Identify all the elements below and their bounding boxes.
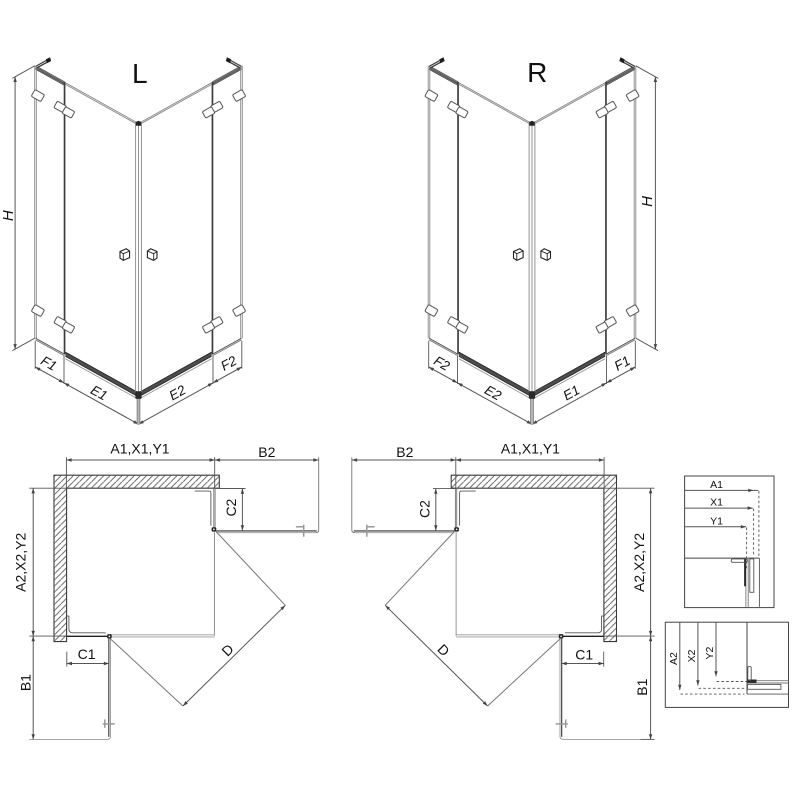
- svg-text:H: H: [0, 210, 17, 221]
- svg-text:A2,X2,Y2: A2,X2,Y2: [13, 533, 29, 592]
- svg-text:B2: B2: [396, 444, 413, 460]
- svg-text:A2: A2: [668, 652, 680, 665]
- svg-text:A1,X1,Y1: A1,X1,Y1: [110, 440, 169, 456]
- svg-text:B1: B1: [634, 678, 650, 695]
- svg-text:R: R: [527, 57, 547, 88]
- svg-text:B1: B1: [18, 674, 34, 691]
- svg-text:C1: C1: [78, 646, 96, 662]
- svg-text:X1: X1: [710, 497, 723, 509]
- svg-text:X2: X2: [686, 649, 698, 662]
- svg-text:H: H: [639, 196, 656, 207]
- svg-text:B2: B2: [258, 444, 275, 460]
- svg-text:A2,X2,Y2: A2,X2,Y2: [631, 533, 647, 592]
- svg-text:A1,X1,Y1: A1,X1,Y1: [501, 440, 560, 456]
- svg-text:C2: C2: [416, 500, 432, 518]
- svg-text:L: L: [132, 58, 148, 89]
- svg-text:C1: C1: [575, 646, 593, 662]
- svg-text:C2: C2: [223, 498, 239, 516]
- svg-text:Y1: Y1: [710, 515, 723, 527]
- svg-text:Y2: Y2: [704, 647, 716, 660]
- svg-text:A1: A1: [710, 479, 723, 491]
